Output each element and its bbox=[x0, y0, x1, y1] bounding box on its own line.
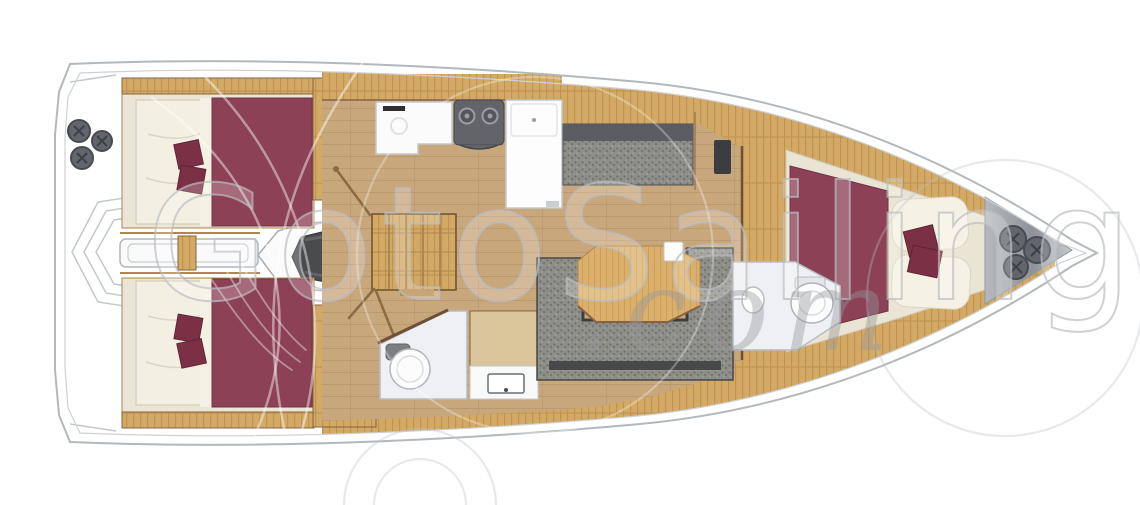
bed-pillow bbox=[177, 339, 207, 369]
faucet-icon bbox=[383, 106, 405, 111]
stove bbox=[454, 100, 504, 145]
deck-hatch-icon bbox=[92, 131, 112, 151]
watermark-suffix-text: .com bbox=[575, 247, 903, 377]
yacht-floorplan: GotoSailing .com bbox=[0, 0, 1140, 505]
deck-hatch-icon bbox=[68, 120, 90, 142]
deck-hatch-icon bbox=[71, 147, 93, 169]
floorplan-svg: GotoSailing .com bbox=[0, 0, 1140, 505]
